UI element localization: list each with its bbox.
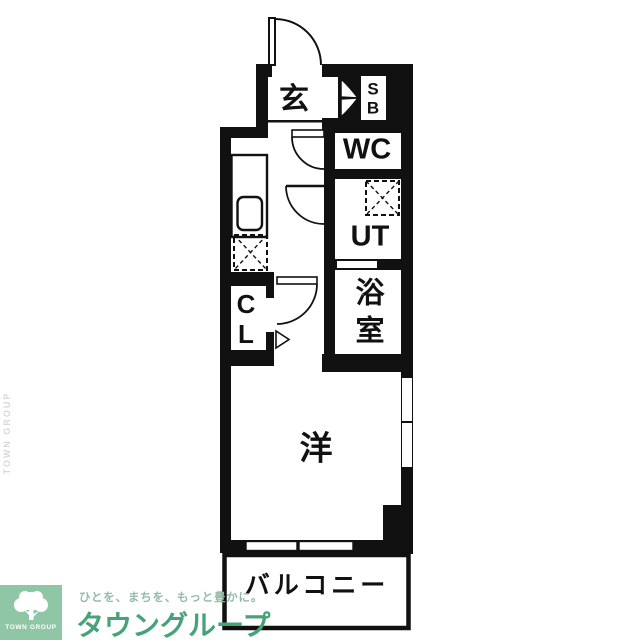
closet-door-icon (276, 331, 289, 348)
tree-icon (0, 585, 62, 640)
kitchen-counter-icon (232, 155, 268, 237)
balcony-sliding-window (246, 542, 353, 551)
bathroom-label-1: 浴 (355, 280, 384, 309)
closet-opening (266, 298, 274, 332)
wc-label: WC (343, 136, 391, 165)
closet-label-c: C (237, 291, 256, 317)
balcony-label: バルコニー (245, 574, 390, 599)
floorplan-image: 玄 S B WC UT 浴 室 C L 洋 バルコニー TOWN GROUP T… (0, 0, 640, 640)
washer-space-icon (366, 181, 399, 215)
western-room-label: 洋 (300, 432, 333, 465)
utility-label: UT (351, 223, 390, 252)
shoe-box-label-b: B (367, 100, 379, 117)
logo-square (0, 585, 62, 640)
window-upper (402, 378, 412, 421)
closet-label-l: L (238, 321, 254, 347)
logo-tagline: ひとを、まちを、もっと豊かに。 (79, 589, 263, 605)
bathroom-sliding-door (337, 261, 377, 268)
entrance-door-icon (269, 18, 321, 65)
bathroom-label-2: 室 (355, 318, 384, 347)
hall-door-icon (292, 130, 324, 169)
logo-square-text: TOWN GROUP (0, 624, 62, 631)
floorplan-drawing (0, 0, 640, 640)
refrigerator-space-icon (234, 235, 267, 270)
side-watermark-text: TOWN GROUP (2, 378, 12, 488)
shoe-box-label-s: S (367, 81, 378, 98)
window-lower (402, 423, 412, 467)
washroom-door-icon (286, 186, 324, 224)
kitchen-sink-icon (238, 197, 263, 230)
entrance-step-line (268, 120, 322, 123)
room-door-icon (277, 277, 317, 324)
entrance-label: 玄 (279, 85, 309, 115)
logo-brand-name: タウングループ (76, 604, 270, 640)
